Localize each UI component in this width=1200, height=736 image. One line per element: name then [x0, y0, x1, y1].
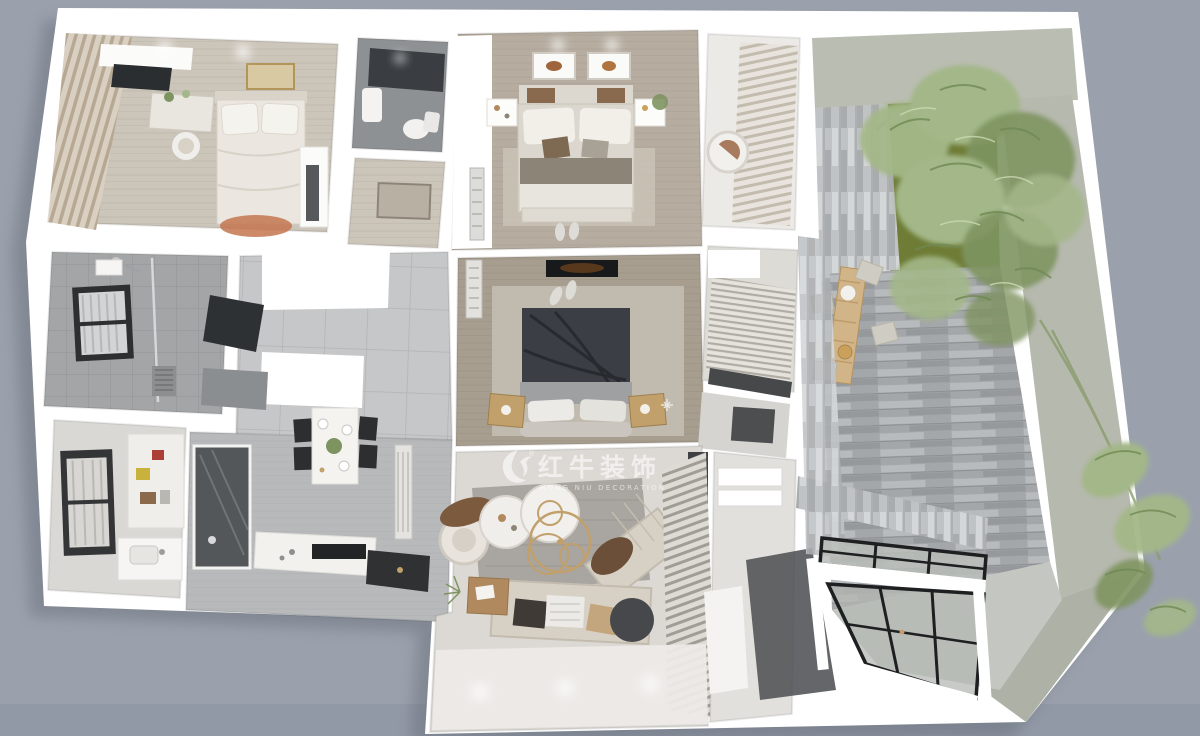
room-utility — [48, 420, 186, 598]
tv-cabinet — [300, 147, 328, 227]
wardrobe — [452, 35, 492, 249]
marble-artwork — [377, 183, 430, 219]
washbasin — [362, 88, 382, 122]
radiator — [395, 445, 412, 539]
room-kitchen-dining — [186, 408, 452, 622]
nook-curtains — [732, 42, 798, 226]
egg-chair — [708, 132, 748, 172]
floor-drain — [152, 366, 176, 396]
hall-gray-cabinet — [201, 368, 268, 410]
registered-mark: ® — [528, 450, 535, 458]
utility-window — [60, 449, 116, 556]
room-bedroom-1 — [48, 33, 338, 237]
vanity-desk — [149, 90, 214, 132]
hall-cabinet-upper — [262, 250, 390, 310]
utility-shelves — [128, 434, 184, 528]
floorplan-svg: ® 红牛装饰 HONG NIU DECORATION — [0, 0, 1200, 736]
shower-glass — [368, 48, 445, 92]
dark-pillow — [513, 598, 548, 628]
tv-wall-floor — [432, 644, 708, 730]
floorplan-render: ® 红牛装饰 HONG NIU DECORATION — [0, 0, 1200, 736]
room-bathroom-1 — [44, 252, 228, 414]
brand-en: HONG NIU DECORATION — [540, 484, 666, 492]
room-wc — [352, 38, 448, 152]
bathroom-window — [72, 285, 134, 362]
wall-cabinet — [96, 260, 122, 275]
kitchen-counter-left — [194, 446, 250, 568]
upper-cabinet — [708, 250, 760, 278]
wall-tv — [546, 260, 618, 277]
room-bedroom-2 — [456, 254, 704, 446]
bed-1 — [215, 91, 307, 224]
dark-ottoman — [610, 598, 654, 642]
gold-artwork — [247, 64, 294, 89]
balcony-wall — [704, 586, 748, 694]
room-lounge-nook — [702, 34, 800, 230]
small-window — [731, 407, 775, 444]
utility-counter — [118, 538, 182, 580]
step — [718, 468, 782, 486]
bed-master — [518, 85, 634, 222]
room-corridor-top — [348, 158, 445, 248]
ac-vent — [466, 260, 482, 318]
room-bathroom-2 — [698, 246, 798, 458]
vanity-chair — [171, 131, 201, 161]
brand-cn: 红牛装饰 — [538, 453, 662, 482]
room-master-bedroom — [452, 30, 702, 250]
round-rug — [220, 215, 292, 237]
step — [718, 490, 782, 506]
bathroom2-blinds — [706, 276, 796, 384]
slipper — [555, 223, 565, 241]
hall-cabinet-lower — [260, 352, 364, 408]
kitchen-island — [254, 532, 376, 576]
